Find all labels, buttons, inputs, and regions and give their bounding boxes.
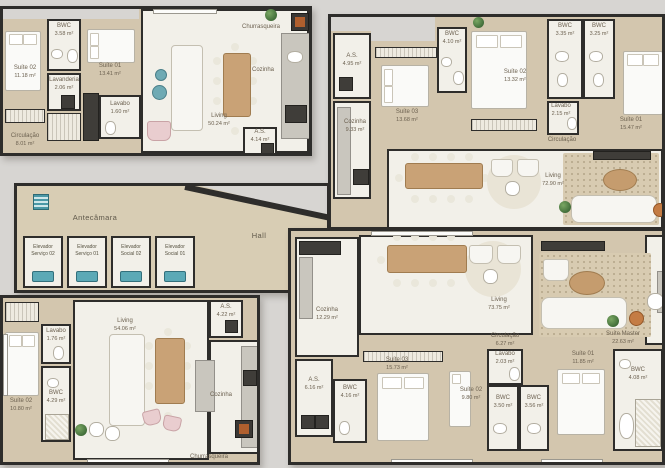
elevator-label: Elevador Serviço 02 (26, 244, 60, 257)
label-suite01: Suíte 0111.85 m² (572, 351, 594, 365)
stove-icon (285, 105, 307, 123)
room-area: 50.24 m² (208, 121, 230, 128)
shower-icon (45, 414, 69, 440)
room-name: Suíte 02 (460, 387, 482, 395)
room-name: Suíte 02 (504, 69, 526, 77)
room-area: 1.76 m² (46, 336, 66, 343)
label-barbecue: Churrasqueira (242, 14, 280, 34)
dining-table-icon (405, 163, 483, 189)
room-name: Circulação (11, 133, 39, 141)
label-circulation: Circulação (548, 137, 576, 145)
armchair-icon (469, 245, 493, 264)
grill-icon (291, 13, 309, 31)
window (391, 459, 473, 464)
room-name: Suíte 02 (14, 65, 36, 73)
room-area: 10.80 m² (10, 406, 32, 413)
label-bwc: BWC4.29 m² (47, 390, 66, 404)
label-service: A.S.4.22 m² (217, 304, 236, 318)
toilet-icon (339, 421, 350, 435)
room-name: Circulação (491, 333, 519, 341)
washer-icon (61, 95, 75, 109)
room-area: 8.01 m² (11, 141, 39, 148)
washer-icon (301, 415, 315, 429)
label-living: Living50.24 m² (208, 113, 230, 127)
label-suite02: Suíte 0210.80 m² (10, 398, 32, 412)
dining-table-icon (387, 245, 467, 273)
room-area: 6.16 m² (305, 385, 324, 392)
sink-icon (493, 423, 507, 434)
room-area: 13.68 m² (396, 117, 418, 124)
label-kitchen: Cozinha (210, 382, 232, 402)
room-name: Antecâmara (73, 213, 117, 222)
label-service: A.S.4.95 m² (343, 53, 362, 67)
washer-icon (315, 415, 329, 429)
toilet-icon (53, 346, 64, 360)
tv-console-icon (593, 151, 651, 160)
room-area: 72.90 m² (542, 181, 564, 188)
armchair-icon (491, 159, 513, 177)
label-laundry: Lavanderia2.06 m² (49, 77, 79, 91)
room-name: Suíte 01 (99, 63, 121, 71)
room-name: Lavabo (495, 351, 515, 359)
label-suite02: Suíte 0211.18 m² (14, 65, 36, 79)
room-name: Circulação (548, 137, 576, 145)
room-area: 11.18 m² (14, 73, 36, 80)
bed-icon (377, 373, 429, 441)
room-name: Suíte 01 (620, 117, 642, 125)
room-name: A.S. (305, 377, 324, 385)
label-living: Living73.75 m² (488, 297, 510, 311)
pouf-icon (105, 426, 120, 441)
plant-icon (473, 17, 484, 28)
room-name: Suíte 01 (572, 351, 594, 359)
grill-icon (235, 420, 253, 438)
room-name: Suíte Master (606, 331, 640, 339)
room-area: 15.73 m² (386, 365, 408, 372)
label-lavabo: Lavabo1.60 m² (110, 101, 130, 115)
label-bwc3: BWC3.25 m² (590, 23, 609, 37)
stove-icon (353, 169, 369, 185)
stairs-icon (33, 194, 49, 210)
wardrobe-icon (5, 109, 45, 123)
room-name: Cozinha (316, 307, 338, 315)
label-bwc: BWC3.58 m² (55, 23, 74, 37)
room-name: A.S. (343, 53, 362, 61)
label-lavabo: Lavabo1.76 m² (46, 328, 66, 342)
kitchen-counter (281, 33, 311, 139)
appliance-icon (299, 241, 341, 255)
room-name: Living (542, 173, 564, 181)
room-name: Churrasqueira (242, 24, 280, 30)
window (3, 334, 8, 396)
unit-bottom-left: Suíte 0210.80 m² Lavabo1.76 m² BWC4.29 m… (0, 295, 260, 465)
room-area: 73.75 m² (488, 305, 510, 312)
chair-icon (647, 293, 664, 310)
elevator-car-icon (32, 271, 54, 282)
bed-icon (623, 51, 663, 115)
room-name: Living (114, 318, 136, 326)
label-suite03: Suíte 0315.73 m² (386, 357, 408, 371)
floor-plan: Suíte 0211.18 m² Circulação8.01 m² BWC3.… (0, 0, 665, 468)
room-name: Lavanderia (49, 77, 79, 85)
plant-icon (607, 315, 619, 327)
room-area: 3.56 m² (525, 403, 544, 410)
armchair-icon (543, 259, 569, 281)
label-kitchen: Cozinha12.29 m² (316, 307, 338, 321)
dining-table-icon (223, 53, 251, 117)
window (371, 231, 473, 236)
bathtub-icon (619, 413, 634, 439)
label-lavabo: Lavabo2.15 m² (551, 103, 571, 117)
toilet-icon (105, 121, 116, 135)
room-area: 15.47 m² (620, 125, 642, 132)
room-name: Lavabo (46, 328, 66, 336)
elevator-label: Elevador Social 02 (114, 244, 148, 257)
label-master: Suíte Master22.63 m² (606, 331, 640, 345)
window (541, 459, 603, 464)
label-circulation: Circulação8.01 m² (11, 133, 39, 147)
room-name: Suíte 02 (10, 398, 32, 406)
sink-icon (527, 423, 541, 434)
room-name: Hall (252, 231, 267, 240)
toilet-icon (453, 71, 464, 85)
side-table-icon (155, 69, 167, 81)
shower-icon (635, 399, 661, 447)
room-name: Suíte 03 (386, 357, 408, 365)
room-name: A.S. (251, 129, 270, 137)
room-name: BWC (629, 367, 648, 375)
label-bwc4: BWC4.08 m² (629, 367, 648, 381)
room-area: 2.06 m² (49, 85, 79, 92)
kitchen-counter (299, 257, 313, 319)
room-area: 4.22 m² (217, 312, 236, 319)
label-service: A.S.4.14 m² (251, 129, 270, 143)
cabinet-icon (83, 93, 99, 141)
room-name: Living (208, 113, 230, 121)
toilet-icon (509, 367, 520, 381)
washer-icon (261, 143, 274, 156)
label-living: Living54.06 m² (114, 318, 136, 332)
armchair-icon (497, 245, 521, 264)
washer-icon (339, 77, 353, 91)
sofa-icon (171, 45, 203, 131)
room-area: 13.41 m² (99, 71, 121, 78)
pouf-icon (653, 203, 665, 217)
label-antechamber: Antecâmara (73, 206, 117, 226)
room-name: BWC (443, 31, 462, 39)
pouf-icon (629, 311, 644, 326)
room-name: A.S. (217, 304, 236, 312)
elevator-car-icon (120, 271, 142, 282)
unit-bottom-right: Cozinha12.29 m² A.S.6.16 m² BWC4.16 m² L… (288, 228, 665, 465)
room-name: BWC (556, 23, 575, 31)
coffee-table-icon (569, 271, 605, 295)
room-area: 9.33 m² (344, 127, 366, 134)
sink-icon (51, 49, 63, 59)
room-area: 4.95 m² (343, 61, 362, 68)
sink-icon (441, 57, 452, 67)
label-bwc1: BWC4.16 m² (341, 385, 360, 399)
label-suite02: Suíte 029.80 m² (460, 387, 482, 401)
label-service: A.S.6.16 m² (305, 377, 324, 391)
label-lavabo: Lavabo2.03 m² (495, 351, 515, 365)
label-bwc3: BWC3.56 m² (525, 395, 544, 409)
room-area: 4.10 m² (443, 39, 462, 46)
elevator-car-icon (76, 271, 98, 282)
room-name: Churrasqueira (190, 454, 228, 460)
plant-icon (75, 424, 87, 436)
elevator-service-02: Elevador Serviço 02 (23, 236, 63, 288)
room-name: Living (488, 297, 510, 305)
label-suite01: Suíte 0113.41 m² (99, 63, 121, 77)
room-name: BWC (47, 390, 66, 398)
chair-icon (145, 342, 153, 350)
closet-icon (47, 113, 81, 141)
wall-notch (331, 17, 371, 31)
room-area: 11.85 m² (572, 359, 594, 366)
room-name: Cozinha (252, 67, 274, 73)
tv-console-icon (541, 241, 605, 251)
room-name: Cozinha (210, 392, 232, 398)
sink-icon (555, 51, 569, 62)
plant-icon (559, 201, 571, 213)
elevator-core: Antecâmara Hall Elevador Serviço 02 Elev… (14, 183, 330, 293)
elevator-label: Elevador Serviço 01 (70, 244, 104, 257)
sofa-icon (109, 334, 145, 426)
armchair-icon (147, 121, 171, 141)
toilet-icon (557, 73, 568, 87)
bed-icon (5, 332, 39, 396)
bed-icon (381, 65, 429, 107)
unit-top-left: Suíte 0211.18 m² Circulação8.01 m² BWC3.… (0, 6, 312, 156)
chair-icon (213, 57, 221, 65)
room-name: Lavabo (551, 103, 571, 111)
elevator-car-icon (164, 271, 186, 282)
room-name: BWC (590, 23, 609, 31)
wardrobe-icon (375, 47, 437, 58)
side-table-icon (152, 85, 167, 100)
toilet-icon (567, 117, 577, 130)
washer-icon (225, 320, 238, 333)
label-bwc2: BWC3.35 m² (556, 23, 575, 37)
sink-icon (47, 378, 59, 388)
toilet-icon (67, 49, 78, 63)
room-area: 3.58 m² (55, 31, 74, 38)
room-name: BWC (525, 395, 544, 403)
label-circulation: Circulação6.27 m² (491, 333, 519, 347)
room-name: BWC (55, 23, 74, 31)
chair-icon (411, 153, 419, 161)
sink-icon (589, 51, 603, 62)
bed-icon (87, 29, 135, 63)
chaise-sofa-icon (571, 195, 657, 223)
room-area: 3.50 m² (494, 403, 513, 410)
label-bwc2: BWC3.50 m² (494, 395, 513, 409)
elevator-service-01: Elevador Serviço 01 (67, 236, 107, 288)
room-area: 3.35 m² (556, 31, 575, 38)
bed-icon (5, 31, 41, 91)
wardrobe-icon (471, 119, 537, 131)
stove-icon (243, 370, 257, 386)
bed-icon (557, 369, 605, 435)
room-area: 2.03 m² (495, 359, 515, 366)
coffee-table-icon (505, 181, 520, 196)
room-name: BWC (494, 395, 513, 403)
room-area: 1.60 m² (110, 109, 130, 116)
label-hall: Hall (252, 224, 267, 244)
wall-notch (3, 9, 139, 19)
wardrobe-icon (5, 302, 39, 322)
elevator-social-01: Elevador Social 01 (155, 236, 195, 288)
sink-icon (287, 51, 303, 63)
wall-notch (371, 17, 435, 41)
elevator-social-02: Elevador Social 02 (111, 236, 151, 288)
room-area: 13.32 m² (504, 77, 526, 84)
armchair-icon (517, 159, 539, 177)
label-barbecue: Churrasqueira (190, 444, 228, 464)
room-name: Suíte 03 (396, 109, 418, 117)
room-area: 2.15 m² (551, 111, 571, 118)
coffee-table-icon (483, 269, 498, 284)
room-area: 6.27 m² (491, 341, 519, 348)
label-kitchen: Cozinha (252, 57, 274, 77)
room-area: 12.29 m² (316, 315, 338, 322)
label-suite03: Suíte 0313.68 m² (396, 109, 418, 123)
room-name: Lavabo (110, 101, 130, 109)
room-area: 4.16 m² (341, 393, 360, 400)
room-area: 9.80 m² (460, 395, 482, 402)
unit-top-right: A.S.4.95 m² Cozinha9.33 m² Suíte 0313.68… (328, 14, 665, 230)
toilet-icon (593, 73, 604, 87)
room-area: 4.14 m² (251, 137, 270, 144)
window (153, 9, 217, 14)
elevator-label: Elevador Social 01 (158, 244, 192, 257)
room-area: 54.06 m² (114, 326, 136, 333)
dining-table-icon (155, 338, 185, 404)
coffee-table-icon (603, 169, 637, 191)
room-area: 4.08 m² (629, 375, 648, 382)
pouf-icon (89, 422, 104, 437)
room-name: BWC (341, 385, 360, 393)
label-suite02: Suíte 0213.32 m² (504, 69, 526, 83)
room-name: Cozinha (344, 119, 366, 127)
label-bwc1: BWC4.10 m² (443, 31, 462, 45)
window (87, 459, 169, 464)
room-area: 4.29 m² (47, 398, 66, 405)
room-area: 3.25 m² (590, 31, 609, 38)
label-suite01: Suíte 0115.47 m² (620, 117, 642, 131)
label-kitchen: Cozinha9.33 m² (344, 119, 366, 133)
room-area: 22.63 m² (606, 339, 640, 346)
label-living: Living72.90 m² (542, 173, 564, 187)
